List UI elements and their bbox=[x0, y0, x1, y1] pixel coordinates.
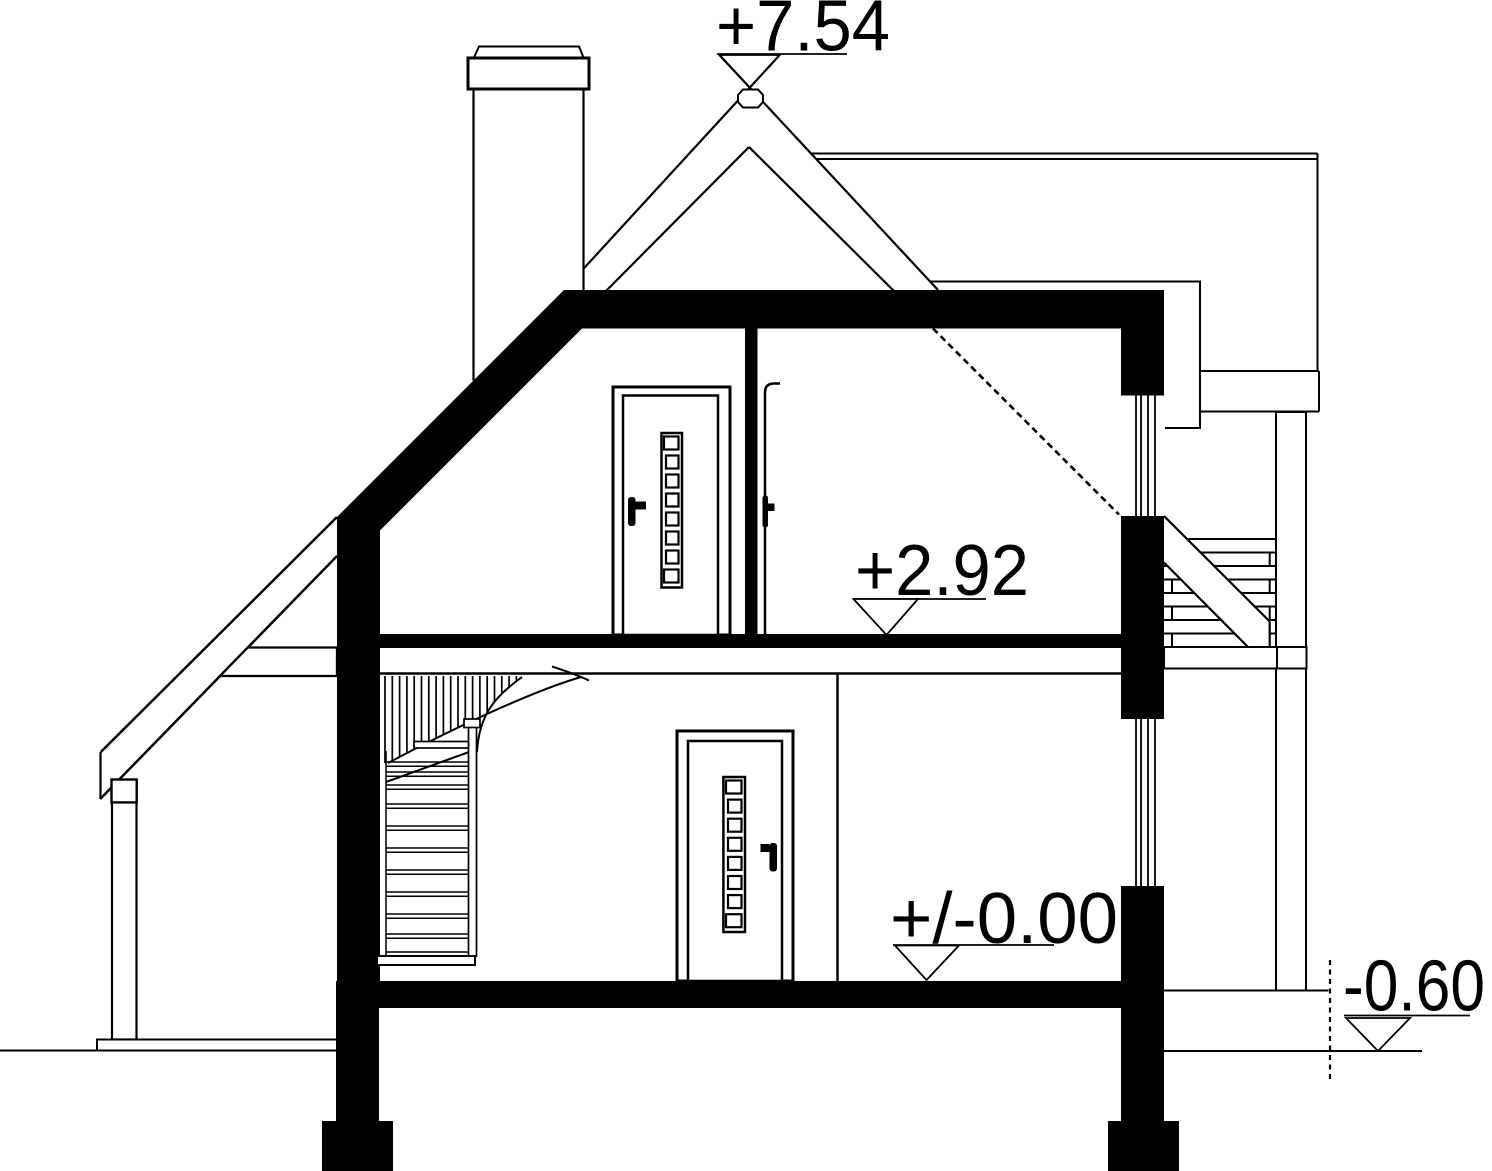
svg-text:+7.54: +7.54 bbox=[716, 0, 890, 67]
svg-text:-0.60: -0.60 bbox=[1343, 946, 1485, 1027]
